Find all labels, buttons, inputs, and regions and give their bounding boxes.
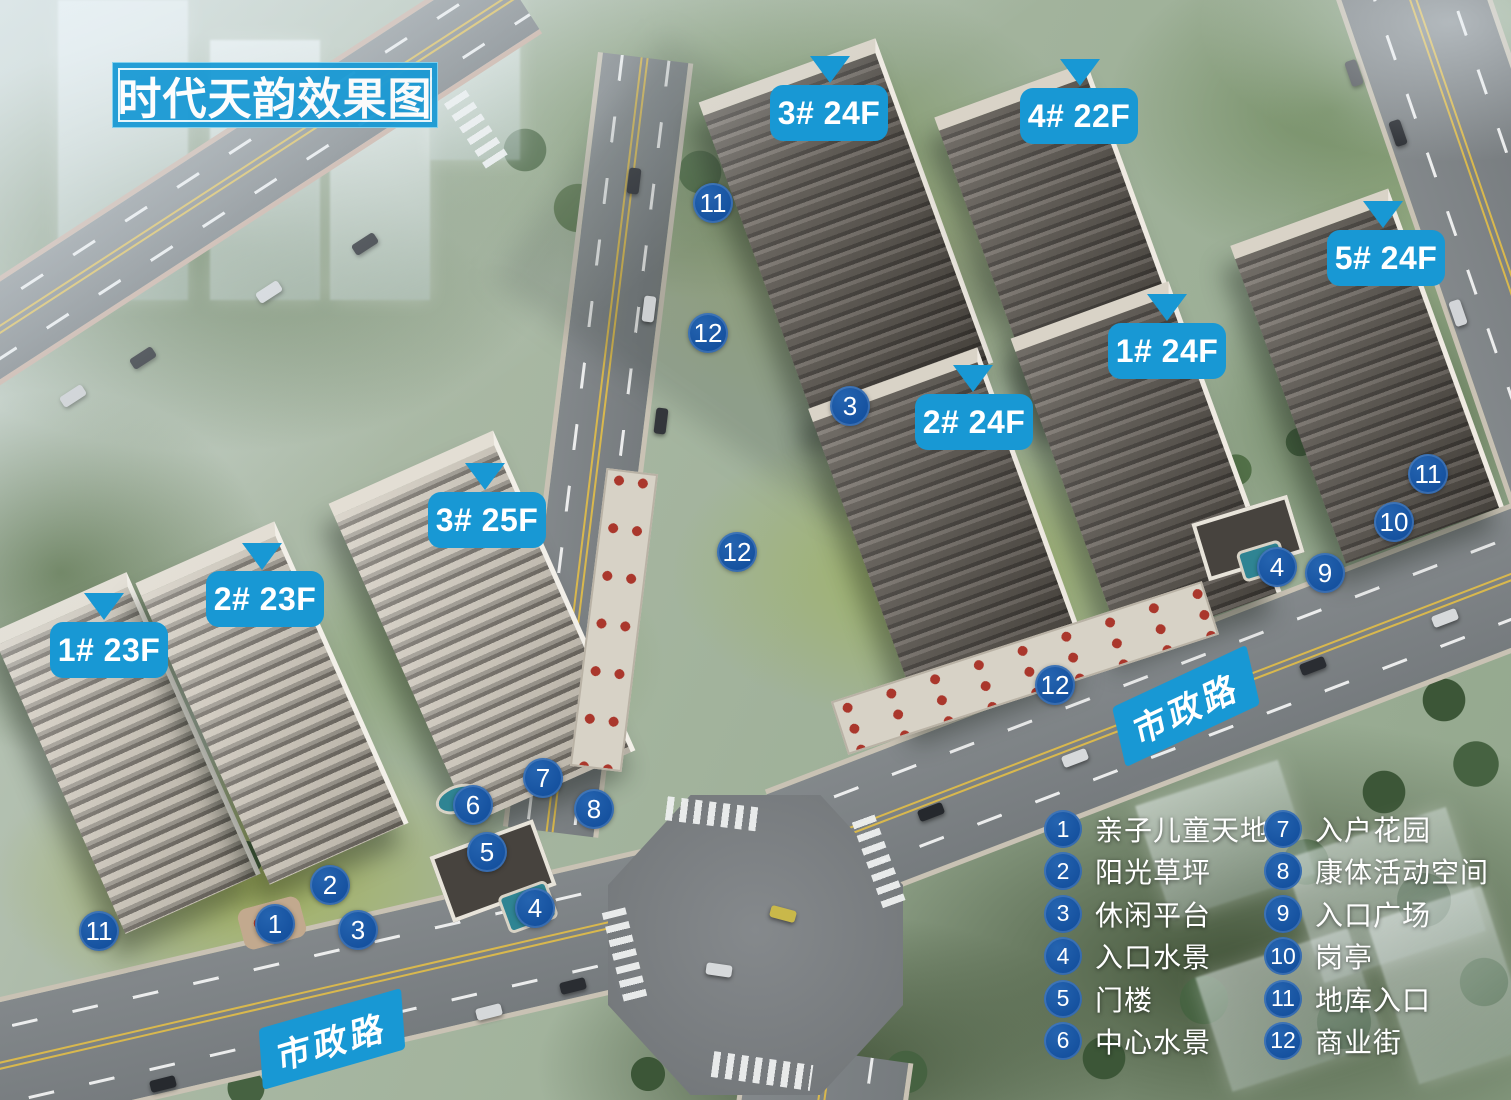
legend-item: 9 入口广场 [1264,895,1489,933]
legend-column-1: 1 亲子儿童天地 2 阳光草坪 3 休闲平台 4 入口水景 [1044,810,1269,1060]
legend-item-number: 3 [1044,895,1082,933]
page-title-text: 时代天韵效果图 [118,63,433,127]
legend-item-number: 2 [1044,852,1082,890]
legend-item-label: 岗亭 [1315,936,1373,976]
legend-item-number: 9 [1264,895,1302,933]
legend-item-number: 11 [1264,980,1302,1018]
legend-item-label: 亲子儿童天地 [1095,809,1269,849]
legend-item: 3 休闲平台 [1044,895,1269,933]
legend-item-label: 休闲平台 [1095,894,1211,934]
legend-item-number: 10 [1264,937,1302,975]
legend-item-label: 入户花园 [1315,809,1431,849]
legend-item: 7 入户花园 [1264,810,1489,848]
legend-item-number: 5 [1044,980,1082,1018]
legend-item: 8 康体活动空间 [1264,852,1489,890]
legend-item: 6 中心水景 [1044,1022,1269,1060]
legend-item: 10 岗亭 [1264,937,1489,975]
legend-item: 5 门楼 [1044,980,1269,1018]
legend-item: 1 亲子儿童天地 [1044,810,1269,848]
legend-item-label: 入口广场 [1315,894,1431,934]
legend-item-label: 入口水景 [1095,936,1211,976]
legend-item-number: 4 [1044,937,1082,975]
legend-item: 2 阳光草坪 [1044,852,1269,890]
legend-item-label: 门楼 [1095,979,1153,1019]
legend-item-label: 康体活动空间 [1315,851,1489,891]
legend-item-label: 阳光草坪 [1095,851,1211,891]
legend-item: 4 入口水景 [1044,937,1269,975]
legend-column-2: 7 入户花园 8 康体活动空间 9 入口广场 10 岗亭 [1264,810,1489,1060]
legend-item-number: 7 [1264,810,1302,848]
legend-item-label: 商业街 [1315,1021,1402,1061]
page-title: 时代天韵效果图 [112,62,438,128]
legend-item-number: 6 [1044,1022,1082,1060]
legend-item-number: 1 [1044,810,1082,848]
legend-item-label: 地库入口 [1315,979,1431,1019]
legend-item-number: 8 [1264,852,1302,890]
legend-item-number: 12 [1264,1022,1302,1060]
legend-item: 12 商业街 [1264,1022,1489,1060]
site-plan-rendering: 时代天韵效果图 3# 24F 4# 22F 5# 24F 1# 24F [0,0,1511,1100]
legend-item-label: 中心水景 [1095,1021,1211,1061]
legend-item: 11 地库入口 [1264,980,1489,1018]
